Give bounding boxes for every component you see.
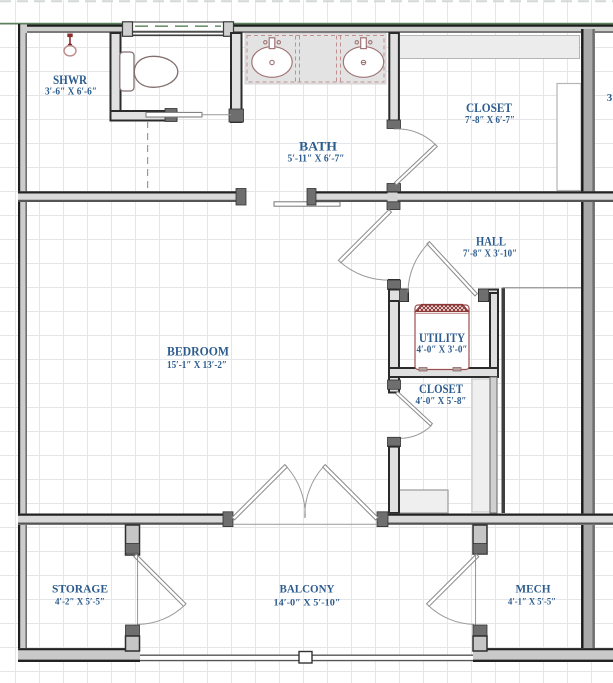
svg-text:CLOSET: CLOSET: [466, 101, 513, 115]
svg-text:15′-1″ X 13′-2″: 15′-1″ X 13′-2″: [167, 360, 227, 371]
svg-text:HALL: HALL: [476, 235, 506, 249]
svg-text:STORAGE: STORAGE: [52, 584, 108, 596]
svg-text:4′-1″ X 5′-5″: 4′-1″ X 5′-5″: [508, 598, 556, 608]
svg-text:3′: 3′: [607, 92, 613, 104]
svg-text:CLOSET: CLOSET: [419, 382, 464, 396]
svg-text:SHWR: SHWR: [53, 73, 88, 87]
svg-text:MECH: MECH: [516, 584, 551, 596]
svg-text:4′-2″ X 5′-5″: 4′-2″ X 5′-5″: [55, 598, 105, 608]
svg-text:UTILITY: UTILITY: [419, 331, 465, 345]
svg-text:3′-6″ X 6′-6″: 3′-6″ X 6′-6″: [45, 87, 97, 98]
svg-text:BATH: BATH: [299, 140, 337, 154]
svg-text:5′-11″ X 6′-7″: 5′-11″ X 6′-7″: [288, 154, 345, 165]
svg-text:4′-0″ X 5′-8″: 4′-0″ X 5′-8″: [416, 396, 467, 407]
svg-text:14′-0″ X 5′-10″: 14′-0″ X 5′-10″: [274, 599, 341, 609]
svg-text:7′-8″ X 6′-7″: 7′-8″ X 6′-7″: [465, 115, 515, 126]
svg-text:BALCONY: BALCONY: [280, 584, 336, 596]
svg-text:4′-0″ X 3′-0″: 4′-0″ X 3′-0″: [417, 345, 468, 356]
svg-text:BEDROOM: BEDROOM: [167, 345, 229, 359]
svg-text:7′-8″ X 3′-10″: 7′-8″ X 3′-10″: [463, 249, 517, 260]
